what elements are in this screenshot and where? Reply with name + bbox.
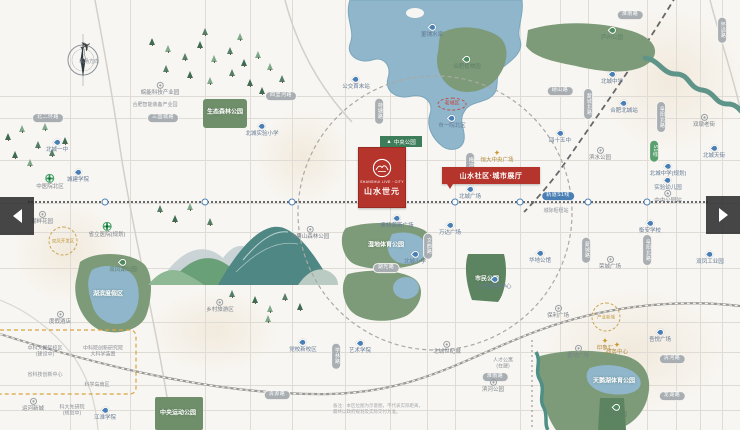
poi-circle-icon xyxy=(216,299,223,306)
label-text: 省立医院(规划) xyxy=(89,232,126,238)
map-pin-icon xyxy=(447,113,457,123)
map-pin-icon xyxy=(555,128,565,138)
left-arrow-icon xyxy=(13,209,22,223)
poi-circle-icon xyxy=(664,190,671,197)
label-text: 荣城广场 xyxy=(599,264,621,270)
label-text: 双墩老街 xyxy=(693,122,715,128)
tree-icon xyxy=(197,41,203,48)
metro-station-icon xyxy=(102,199,109,206)
label-text: 合肥智能装备产业园 xyxy=(132,103,177,109)
map-pin-icon xyxy=(607,69,617,79)
map-pin-icon xyxy=(535,248,545,258)
label-text: 合肥北城站 xyxy=(610,108,638,114)
tree-icon xyxy=(182,53,188,60)
label-text: 社区服务中心 xyxy=(478,284,511,290)
poi-circle-icon xyxy=(29,398,36,405)
label-text: 万达广场 xyxy=(439,230,461,236)
poi-pin-label: 党校新校区 xyxy=(289,339,317,353)
label-text: 置地广场 xyxy=(567,353,589,359)
project-emblem-icon xyxy=(372,158,392,178)
label-text: 北城世纪城 xyxy=(433,349,461,355)
poi-pin-label: 公交首末站 xyxy=(342,76,370,90)
label-text: 保利广场 xyxy=(547,313,569,319)
road-label: 蒙城路 xyxy=(581,237,591,264)
hospital-label: 省立医院(规划) xyxy=(89,222,126,238)
tree-icon xyxy=(165,45,171,52)
poi-circle-icon xyxy=(606,256,613,263)
label-text: 北城小学 xyxy=(404,259,426,265)
label-text: 科大先研院 (规划中) xyxy=(59,405,84,417)
label-text: 四十五中 xyxy=(549,138,571,144)
map-pin-icon xyxy=(257,121,267,131)
poi-circle-icon xyxy=(596,147,603,154)
star-icon: ✦ xyxy=(494,150,501,156)
label-text: 龙湖路 xyxy=(659,391,686,401)
label-text: 省科技创新中心 xyxy=(27,373,62,379)
district-badge-red: 老城区 xyxy=(437,98,466,111)
label-text: 度假酒店 xyxy=(49,319,71,325)
metro-station-icon xyxy=(644,199,651,206)
metro-station-icon xyxy=(289,199,296,206)
label-text: 人才公寓 (在建) xyxy=(493,358,513,370)
label-text: 皖能科技产业园 xyxy=(141,90,180,96)
label-text: 生态森林公园 xyxy=(207,110,243,117)
district-badge: 产业新城 xyxy=(592,303,621,332)
curved-road xyxy=(285,0,352,122)
label-text: 政务中心 xyxy=(606,349,628,355)
road-label: 淮南路 xyxy=(617,10,644,20)
label-text: 北城实验小学 xyxy=(245,131,278,137)
map-shapes-layer xyxy=(0,0,740,430)
label-text: 滨水公园 xyxy=(589,155,611,161)
area-text-label: 科大先研院 (规划中) xyxy=(59,405,84,417)
label-text: 学林路 xyxy=(331,343,341,370)
landmark-star-label: ✦恒大中央广场 xyxy=(480,150,513,163)
map-pin-icon xyxy=(100,405,110,415)
label-text: 中央运动公园 xyxy=(160,411,196,418)
label-text: 湿地公园 xyxy=(605,412,627,418)
north-park-band xyxy=(526,23,655,71)
tree-icon xyxy=(229,290,235,297)
hospital-cross-icon xyxy=(45,174,54,183)
area-text-label: 中科院创新研究院 大科学装置 xyxy=(83,346,123,358)
tree-icon xyxy=(255,51,261,58)
label-text: 党校新校区 xyxy=(289,347,317,353)
poi-circle-icon xyxy=(56,311,63,318)
poi-pin-label: 江淮学院 xyxy=(94,407,116,421)
tree-icon xyxy=(265,315,271,322)
park-name-label: 湿地体育公园 xyxy=(368,243,404,250)
label-text: 运河新城 xyxy=(22,406,44,412)
tree-icon xyxy=(12,151,18,158)
poi-circle-icon xyxy=(156,82,163,89)
disclaimer-line: 最终以政府规划及实际交付为准。 xyxy=(333,409,463,415)
label-text: 湿地体育公园 xyxy=(368,243,404,250)
label-text: 庐州公园 xyxy=(601,35,623,41)
poi-circle-label: 荣城广场 xyxy=(599,256,621,270)
poi-circle-label: 置地广场 xyxy=(567,345,589,359)
poi-pin-label: 北城一中 xyxy=(46,139,68,153)
tree-icon xyxy=(5,133,11,140)
map-pin-icon xyxy=(490,274,500,284)
road-label: 北二环路 xyxy=(32,113,64,123)
label-text: 华地公馆 xyxy=(529,258,551,264)
project-park-tag: ▲ 中央公园 xyxy=(380,136,422,147)
area-text-label: 人才公寓 (在建) xyxy=(493,358,513,370)
park-pin-label: 双凤湖公园 xyxy=(109,259,137,273)
park-pin-icon xyxy=(607,25,617,35)
tree-icon xyxy=(279,75,285,82)
poi-pin-label: 万达广场 xyxy=(439,222,461,236)
tree-icon xyxy=(42,123,48,130)
park-name-label: 中央运动公园 xyxy=(160,411,196,418)
label-text: 蒙城北路 xyxy=(583,88,593,120)
tree-icon xyxy=(163,65,169,72)
map-pin-icon xyxy=(427,22,437,32)
map-pin-icon xyxy=(355,338,365,348)
label-text: 艺术学院 xyxy=(349,348,371,354)
label-text: 江淮学院 xyxy=(94,415,116,421)
map-pin-icon xyxy=(663,175,673,185)
poi-circle-label: 滨河公园 xyxy=(482,379,504,393)
label-text: 中科院创新研究院 大科学装置 xyxy=(83,346,123,358)
metro-station-icon xyxy=(202,199,209,206)
label-text: 市一院北区 xyxy=(438,123,466,129)
road-label: 学林路 xyxy=(331,343,341,370)
right-arrow-icon xyxy=(719,208,728,222)
poi-circle-icon xyxy=(489,379,496,386)
tree-icon xyxy=(172,215,178,222)
tree-icon xyxy=(211,55,217,62)
road-label: 阜阳北路 xyxy=(642,234,652,266)
label-text: 恒大中央广场 xyxy=(480,157,513,163)
road-label: 湖光路 xyxy=(373,263,400,273)
hospital-cross-icon xyxy=(102,222,111,231)
park-pin-icon xyxy=(118,257,128,267)
poi-circle-label: 滨水公园 xyxy=(589,147,611,161)
label-text: 合肥植物园 xyxy=(453,64,481,70)
location-map: ✈ 机场方向皖能科技产业园合肥智能装备产业园北二环路三国城路生态森林公园北城实验… xyxy=(0,0,740,430)
label-text: 中央公园站 xyxy=(654,198,682,204)
park-pin-label: 庐州公园 xyxy=(601,27,623,41)
road-label: 清河路 xyxy=(659,354,686,364)
label-text: 产业新城 xyxy=(597,314,615,319)
poi-pin-label: 双凤工业园 xyxy=(696,251,724,265)
poi-circle-label: 湖畔花园 xyxy=(31,211,53,225)
tree-icon xyxy=(207,218,213,225)
project-name-en: SHANSHUI LIVE · CITY xyxy=(360,180,404,184)
label-text: 清源路 xyxy=(264,390,291,400)
tree-icon xyxy=(187,71,193,78)
map-pin-icon xyxy=(619,98,629,108)
label-text: 董铺水库 xyxy=(421,32,443,38)
project-logo-card: SHANSHUI LIVE · CITY 山水世元 xyxy=(358,147,406,208)
label-text: 蒙城路 xyxy=(581,237,591,264)
tree-icon xyxy=(35,141,41,148)
road-label: 怀远路 xyxy=(717,17,727,44)
label-text: 湖滨度假区 xyxy=(93,292,123,299)
road-label: 四里河路 xyxy=(265,91,297,101)
label-text: 三国城路 xyxy=(147,113,179,123)
park-pin-icon xyxy=(462,54,472,64)
label-text: 天鹅湖体育公园 xyxy=(593,379,635,386)
landmark-star-label: ✦政务中心 xyxy=(606,342,628,355)
poi-pin-label: 市一院北区 xyxy=(438,115,466,129)
project-name-cn: 山水世元 xyxy=(364,186,400,197)
map-pin-icon xyxy=(465,184,475,194)
metro-station-icon xyxy=(585,199,592,206)
area-text-label: 合肥智能装备产业园 xyxy=(132,103,177,109)
label-text: 老城区 xyxy=(444,101,459,107)
label-text: 湖畔花园 xyxy=(31,219,53,225)
poi-pin-label: 北城广场 xyxy=(459,186,481,200)
tree-icon xyxy=(229,69,235,76)
poi-pin-label: 城建学院 xyxy=(67,169,89,183)
tree-icon xyxy=(252,296,258,303)
map-pin-icon xyxy=(298,337,308,347)
tree-icon xyxy=(267,305,273,312)
showroom-banner: 山水社区·城市展厅 xyxy=(442,167,540,184)
poi-pin-label: 北城天街 xyxy=(703,145,725,159)
label-text: 淮南路 xyxy=(617,10,644,20)
map-pin-icon xyxy=(351,74,361,84)
project-tag-label: 中央公园 xyxy=(394,138,416,146)
poi-pin-label: 北城中学(规划) xyxy=(650,163,687,177)
park-name-label: 湖滨度假区 xyxy=(93,292,123,299)
road-label: 荷塘路 xyxy=(374,98,384,125)
label-text: 阜阳北路 xyxy=(642,234,652,266)
label-text: 双凤工业园 xyxy=(696,259,724,265)
metro-station-icon xyxy=(517,199,524,206)
tree-icon xyxy=(19,125,25,132)
poi-circle-icon xyxy=(574,345,581,352)
poi-circle-icon xyxy=(554,305,561,312)
label-text: 清河路 xyxy=(659,354,686,364)
park-pin-label: 湿地公园 xyxy=(605,404,627,418)
label-text: S1线 xyxy=(649,140,659,163)
poi-circle-icon xyxy=(443,341,450,348)
metro-station-icon xyxy=(452,199,459,206)
poi-pin-label: 华地公馆 xyxy=(529,250,551,264)
label-text: 大蜀山森林公园 xyxy=(291,234,330,240)
tree-icon xyxy=(247,79,253,86)
poi-circle-label: 中央公园站 xyxy=(654,190,682,204)
road-label: 龙湖路 xyxy=(659,391,686,401)
tree-icon xyxy=(267,63,273,70)
label-text: 城建学院 xyxy=(67,177,89,183)
label-text: 中科大国际校区 (建设中) xyxy=(27,346,62,358)
road-label: 文曲路 xyxy=(423,233,433,260)
map-pin-icon xyxy=(52,137,62,147)
map-pin-icon xyxy=(709,143,719,153)
label-text: 北城广场 xyxy=(459,194,481,200)
poi-pin-label: 合肥北城站 xyxy=(610,100,638,114)
poi-circle-label: 乡村旅游区 xyxy=(206,299,234,313)
poi-pin-label: 衡安学校 xyxy=(639,220,661,234)
tree-icon xyxy=(187,203,193,210)
poi-circle-label: 运河新城 xyxy=(22,398,44,412)
lake-island xyxy=(406,8,424,18)
road-label: 清源路 xyxy=(264,390,291,400)
label-text: 公交首末站 xyxy=(342,84,370,90)
label-text: 吾悦广场 xyxy=(649,337,671,343)
road-label: 阜阳北路 xyxy=(656,101,666,133)
map-pin-icon xyxy=(73,167,83,177)
area-text-label: 中科大国际校区 (建设中) xyxy=(27,346,62,358)
label-text: 北城中学 xyxy=(601,79,623,85)
label-text: 衡安学校 xyxy=(639,228,661,234)
map-pin-icon xyxy=(705,249,715,259)
tree-icon xyxy=(202,28,208,35)
poi-circle-label: 保利广场 xyxy=(547,305,569,319)
road-label: 蒙城北路 xyxy=(583,88,593,120)
map-pin-icon xyxy=(392,213,402,223)
map-disclaimer: 备注：本区位图为示意图，不代表实际距离， 最终以政府规划及实际交付为准。 xyxy=(333,403,463,416)
label-text: 阜阳北路 xyxy=(656,101,666,133)
map-pin-icon xyxy=(410,249,420,259)
park-pin-icon xyxy=(611,402,621,412)
hospital-label: 中医院北区 xyxy=(36,174,64,190)
area-text-label: 科学岛南区 xyxy=(84,383,109,389)
poi-pin-label: 艺术学院 xyxy=(349,340,371,354)
area-text-label: 机场方向 xyxy=(79,60,99,66)
label-text: 中医院北区 xyxy=(36,184,64,190)
wetland-park-lake2 xyxy=(393,277,419,299)
poi-pin-label: 四十五中 xyxy=(549,130,571,144)
label-text: 奥特莱斯广场 xyxy=(380,223,413,229)
prev-image-button[interactable] xyxy=(0,197,34,235)
poi-circle-label: 度假酒店 xyxy=(49,311,71,325)
label-text: 科学岛南区 xyxy=(84,383,109,389)
label-text: 怀远路 xyxy=(717,17,727,44)
road-label: 砀山路 xyxy=(547,86,574,96)
area-text-label: 省科技创新中心 xyxy=(27,373,62,379)
park-name-label: 天鹅湖体育公园 xyxy=(593,379,635,386)
tree-icon xyxy=(227,47,233,54)
poi-pin-label: 吾悦广场 xyxy=(649,329,671,343)
metro-line-label: 轨道S1线 xyxy=(541,191,575,201)
park-pin-label: 合肥植物园 xyxy=(453,56,481,70)
tree-icon xyxy=(241,59,247,66)
label-text: 滨河公园 xyxy=(482,387,504,393)
poi-circle-label: 大蜀山森林公园 xyxy=(291,226,330,240)
poi-circle-label: 北城世纪城 xyxy=(433,341,461,355)
road-label: 三国城路 xyxy=(147,113,179,123)
label-text: 北城一中 xyxy=(46,147,68,153)
district-badge: 双凤开发区 xyxy=(49,227,78,256)
tree-icon xyxy=(149,38,155,45)
tree-icon xyxy=(282,293,288,300)
star-icon: ✦ xyxy=(614,342,621,348)
label-text: 文曲路 xyxy=(423,233,433,260)
map-pin-icon xyxy=(645,218,655,228)
label-text: 双凤开发区 xyxy=(52,238,75,243)
label-text: 荷塘路 xyxy=(374,98,384,125)
tree-icon xyxy=(207,77,213,84)
showroom-banner-pointer xyxy=(447,184,453,189)
map-pin-icon xyxy=(445,220,455,230)
poi-pin-label: 董铺水库 xyxy=(421,24,443,38)
poi-circle-icon xyxy=(38,211,45,218)
poi-pin-label: 奥特莱斯广场 xyxy=(380,215,413,229)
map-pin-icon xyxy=(663,161,673,171)
poi-circle-icon xyxy=(306,226,313,233)
label-text: 双凤湖公园 xyxy=(109,267,137,273)
label-text: 机场方向 xyxy=(79,60,99,66)
tree-icon: ▲ xyxy=(386,139,391,145)
map-pin-icon xyxy=(655,327,665,337)
label-text: 砀山路 xyxy=(547,86,574,96)
poi-circle-label: 皖能科技产业园 xyxy=(141,82,180,96)
tree-icon xyxy=(157,205,163,212)
label-text: 北城天街 xyxy=(703,153,725,159)
poi-pin-label: 北城实验小学 xyxy=(245,123,278,137)
label-text: 轨道S1线 xyxy=(541,191,575,201)
label-text: 四里河路 xyxy=(265,91,297,101)
area-text-label: 城际枢纽站 xyxy=(543,209,568,215)
label-text: 城际枢纽站 xyxy=(543,209,568,215)
label-text: 湖光路 xyxy=(373,263,400,273)
tree-icon xyxy=(297,303,303,310)
tree-icon xyxy=(237,33,243,40)
road-label-highlight: S1线 xyxy=(649,140,659,163)
poi-circle-label: 双墩老街 xyxy=(693,114,715,128)
park-name-label: 生态森林公园 xyxy=(207,110,243,117)
label-text: 乡村旅游区 xyxy=(206,307,234,313)
label-text: 北二环路 xyxy=(32,113,64,123)
next-image-button[interactable] xyxy=(706,196,740,234)
tree-icon xyxy=(27,159,33,166)
poi-circle-icon xyxy=(700,114,707,121)
poi-pin-label: 北城中学 xyxy=(601,71,623,85)
poi-pin-label: 社区服务中心 xyxy=(478,276,511,290)
